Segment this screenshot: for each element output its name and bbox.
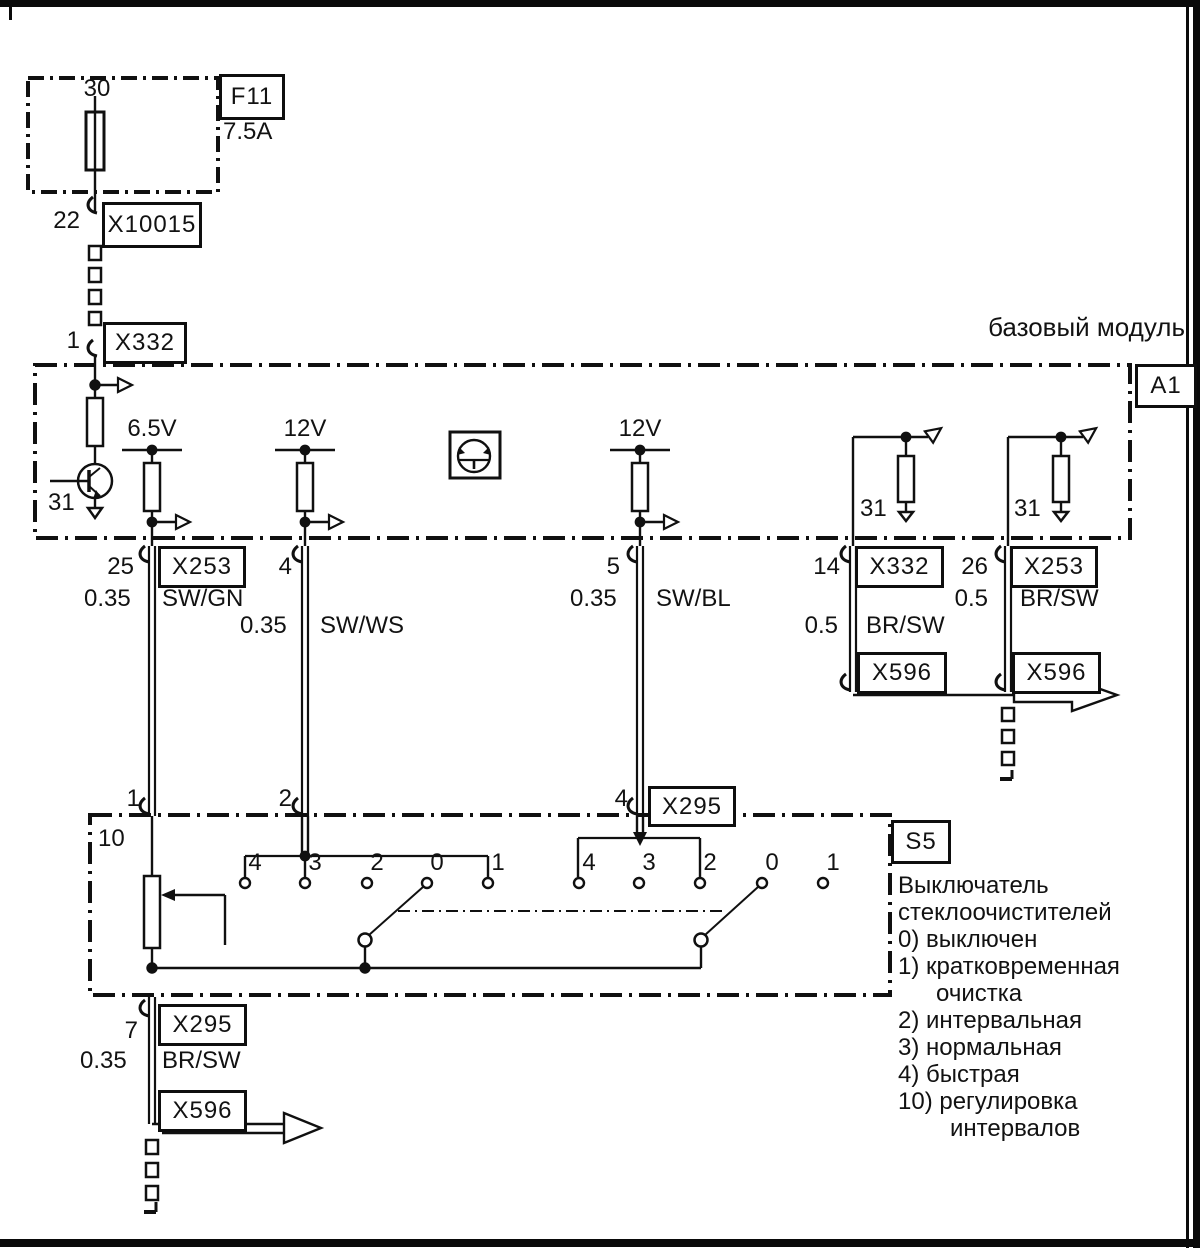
legend-line: 3) нормальная bbox=[898, 1034, 1120, 1061]
s5-g1-pos4: 4 bbox=[243, 850, 267, 875]
gauge-4-label: 0.35 bbox=[240, 613, 287, 638]
pin-1-label: 1 bbox=[52, 328, 80, 353]
connector-x596-pin14-box: X596 bbox=[857, 652, 947, 694]
pin-5-label: 5 bbox=[586, 554, 620, 579]
connector-x253-pin25-label: X253 bbox=[172, 553, 232, 581]
s5-g1-pos2: 2 bbox=[365, 850, 389, 875]
legend-line: 10) регулировка bbox=[898, 1088, 1120, 1115]
s5-pin-1-label: 1 bbox=[110, 786, 140, 811]
connector-x295-s5-label: X295 bbox=[662, 793, 722, 821]
gauge-5-label: 0.35 bbox=[570, 586, 617, 611]
switch-group2 bbox=[574, 816, 828, 968]
legend-line: 1) кратковременная bbox=[898, 953, 1120, 980]
potentiometer bbox=[144, 876, 160, 948]
connector-x332-pin14-box: X332 bbox=[855, 546, 944, 588]
s5-g2-pos0: 0 bbox=[760, 850, 784, 875]
color-25-label: SW/GN bbox=[162, 586, 243, 611]
dashed-wire-below-pin26 bbox=[1000, 708, 1014, 779]
color-26-label: BR/SW bbox=[1020, 586, 1099, 611]
connector-x596-pin26-box: X596 bbox=[1012, 652, 1101, 694]
color-14-label: BR/SW bbox=[866, 613, 945, 638]
wiring-diagram-page: F11 X10015 X332 A1 X253 X332 X596 X253 X… bbox=[0, 0, 1200, 1248]
gauge-7-label: 0.35 bbox=[80, 1048, 127, 1073]
legend-line: 4) быстрая bbox=[898, 1061, 1120, 1088]
wiper-motor-icon bbox=[450, 432, 500, 478]
s5-g1-pos3: 3 bbox=[303, 850, 327, 875]
pin-4-label: 4 bbox=[258, 554, 292, 579]
connector-x332-top-box: X332 bbox=[103, 322, 187, 364]
connector-x253-pin26-label: X253 bbox=[1024, 553, 1084, 581]
legend-line: стеклоочистителей bbox=[898, 899, 1120, 926]
connector-x295-s5-box: X295 bbox=[648, 786, 736, 827]
ground-circuit-b bbox=[1008, 423, 1100, 546]
dashed-wire-below-pin7 bbox=[144, 1140, 158, 1212]
pin-7-label: 7 bbox=[104, 1018, 138, 1043]
legend-line: очистка bbox=[898, 980, 1120, 1007]
s5-g2-pos2: 2 bbox=[698, 850, 722, 875]
connector-x253-pin26-box: X253 bbox=[1010, 546, 1098, 588]
rail-6v5 bbox=[122, 446, 190, 546]
gauge-25-label: 0.35 bbox=[84, 586, 131, 611]
connector-x332-pin14-label: X332 bbox=[869, 553, 929, 581]
connector-x10015-box: X10015 bbox=[102, 202, 202, 248]
connector-x596-pin14-label: X596 bbox=[872, 659, 932, 687]
connector-x10015-label: X10015 bbox=[108, 211, 197, 239]
rail-12v-b bbox=[610, 446, 678, 546]
pin-25-label: 25 bbox=[96, 554, 134, 579]
color-4-label: SW/WS bbox=[320, 613, 404, 638]
gauge-14-label: 0.5 bbox=[794, 613, 838, 638]
legend-line: интервалов bbox=[898, 1115, 1120, 1142]
switch-s5-label: S5 bbox=[905, 828, 936, 856]
s5-g1-pos1: 1 bbox=[486, 850, 510, 875]
connector-x596-pin7-box: X596 bbox=[158, 1090, 247, 1132]
switch-legend: Выключатель стеклоочистителей 0) выключе… bbox=[898, 872, 1120, 1142]
s5-g2-pos3: 3 bbox=[637, 850, 661, 875]
pin-26-label: 26 bbox=[948, 554, 988, 579]
fuse-id-label: F11 bbox=[231, 83, 274, 111]
ground-a-label: 31 bbox=[860, 496, 887, 521]
legend-line: 0) выключен bbox=[898, 926, 1120, 953]
fuse-id-box: F11 bbox=[219, 74, 285, 120]
gauge-26-label: 0.5 bbox=[946, 586, 988, 611]
terminal-30-label: 30 bbox=[79, 76, 115, 101]
ground-b-label: 31 bbox=[1014, 496, 1041, 521]
pin-22-label: 22 bbox=[44, 208, 80, 233]
legend-line: 2) интервальная bbox=[898, 1007, 1120, 1034]
color-5-label: SW/BL bbox=[656, 586, 731, 611]
connector-x295-pin7-label: X295 bbox=[172, 1011, 232, 1039]
s5-pot-pin-label: 10 bbox=[98, 826, 125, 851]
rail-12v-a bbox=[275, 446, 343, 546]
s5-g1-pos0: 0 bbox=[425, 850, 449, 875]
rail-6v5-label: 6.5V bbox=[120, 416, 184, 441]
connector-x295-pin7-box: X295 bbox=[158, 1004, 247, 1046]
module-a1-border bbox=[35, 365, 1130, 538]
color-7-label: BR/SW bbox=[162, 1048, 241, 1073]
fuse-rating-label: 7.5A bbox=[223, 119, 272, 144]
legend-line: Выключатель bbox=[898, 872, 1120, 899]
module-a1-label: A1 bbox=[1150, 372, 1181, 400]
module-title: базовый модуль bbox=[830, 314, 1185, 341]
transistor-ground-label: 31 bbox=[48, 490, 75, 515]
switch-group1 bbox=[240, 816, 493, 968]
s5-internals bbox=[144, 816, 828, 973]
s5-g2-pos1: 1 bbox=[821, 850, 845, 875]
connector-x596-pin7-label: X596 bbox=[172, 1097, 232, 1125]
connector-x332-top-label: X332 bbox=[115, 329, 175, 357]
fuse-icon bbox=[86, 96, 104, 213]
connector-x253-pin25-box: X253 bbox=[158, 546, 246, 588]
module-a1-id-box: A1 bbox=[1135, 364, 1197, 408]
dashed-wire-x10015-x332 bbox=[89, 246, 101, 325]
ground-circuit-a bbox=[853, 423, 945, 546]
s5-g2-pos4: 4 bbox=[577, 850, 601, 875]
rail-12v-b-label: 12V bbox=[610, 416, 670, 441]
rail-12v-a-label: 12V bbox=[275, 416, 335, 441]
connector-x596-pin26-label: X596 bbox=[1026, 659, 1086, 687]
s5-pin-4-label: 4 bbox=[598, 786, 628, 811]
s5-pin-2-label: 2 bbox=[262, 786, 292, 811]
switch-s5-id-box: S5 bbox=[891, 820, 951, 864]
pin-14-label: 14 bbox=[796, 554, 840, 579]
fuse-box-border bbox=[28, 78, 218, 192]
